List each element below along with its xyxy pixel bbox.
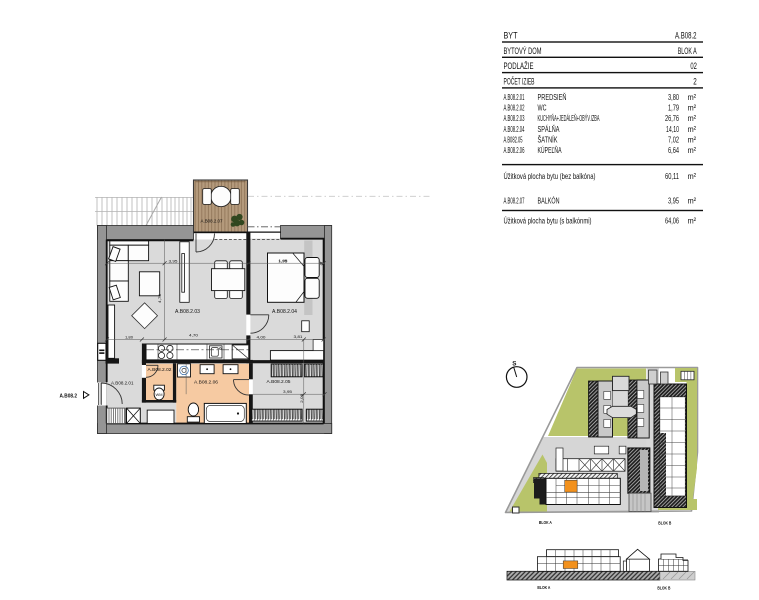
svg-text:m²: m² [688,135,697,145]
svg-text:BYT: BYT [504,31,518,41]
svg-text:BLOK B: BLOK B [658,521,672,526]
svg-text:A.B08.2: A.B08.2 [675,31,697,41]
svg-text:WM: WM [156,393,163,397]
svg-text:A.B08.2.04: A.B08.2.04 [504,124,525,134]
svg-text:PREDSIEŇ: PREDSIEŇ [538,92,567,102]
svg-text:A.B08.2.06: A.B08.2.06 [504,145,525,155]
svg-text:3,95: 3,95 [283,389,293,394]
svg-text:6,64: 6,64 [668,145,679,155]
svg-text:A.B08.2.02: A.B08.2.02 [148,367,172,373]
svg-text:S: S [512,361,517,368]
svg-text:m²: m² [688,145,697,155]
svg-text:A.B08.2.03: A.B08.2.03 [175,309,200,315]
svg-text:02: 02 [690,61,697,71]
svg-text:PODLAŽIE: PODLAŽIE [504,61,534,71]
svg-text:KÚPEĽŇA: KÚPEĽŇA [538,145,562,155]
svg-text:Úžitková plocha bytu (bez balk: Úžitková plocha bytu (bez balkóna) [504,171,596,181]
svg-text:SPÁLŇA: SPÁLŇA [538,124,560,134]
svg-text:BLOK A: BLOK A [539,520,553,525]
svg-text:1,80: 1,80 [125,334,134,339]
svg-text:14,10: 14,10 [666,124,679,134]
svg-text:KUCHYŇA+JEDÁLEŇ+OBÝV.IZBA: KUCHYŇA+JEDÁLEŇ+OBÝV.IZBA [538,113,600,123]
svg-text:7,02: 7,02 [668,135,679,145]
svg-text:A.B08.2.06: A.B08.2.06 [194,380,218,386]
svg-text:A.B08.2.03: A.B08.2.03 [504,113,525,123]
svg-text:4,76: 4,76 [157,293,162,303]
svg-text:A.B08.2.05: A.B08.2.05 [267,379,291,385]
svg-text:POČET IZIEB: POČET IZIEB [504,76,535,86]
svg-text:3,95: 3,95 [169,258,179,263]
svg-text:60,11: 60,11 [665,171,679,181]
svg-text:1,95: 1,95 [279,258,289,263]
svg-text:1,79: 1,79 [668,102,679,112]
svg-text:m²: m² [688,113,697,123]
svg-text:3,80: 3,80 [668,92,679,102]
svg-text:3,81: 3,81 [294,334,304,339]
svg-text:4,70: 4,70 [189,333,199,338]
svg-text:A.B08.2.01: A.B08.2.01 [111,380,134,386]
svg-text:m²: m² [688,171,697,181]
svg-text:4,00: 4,00 [257,335,267,340]
svg-text:m²: m² [688,196,697,206]
svg-text:A.B082.05: A.B082.05 [504,135,523,145]
svg-text:BLOK B: BLOK B [657,586,671,591]
svg-text:A.B08.2.04: A.B08.2.04 [272,309,297,315]
svg-text:A.B08.2.07: A.B08.2.07 [504,196,525,206]
svg-text:64,06: 64,06 [665,215,679,225]
svg-text:m²: m² [688,124,697,134]
svg-text:ŠATNÍK: ŠATNÍK [538,135,558,145]
svg-text:A.B08.2.02: A.B08.2.02 [504,102,525,112]
svg-text:BLOK A: BLOK A [678,46,697,56]
svg-text:BLOK A: BLOK A [537,585,551,590]
svg-text:A.B08.2: A.B08.2 [60,394,78,400]
svg-text:BYTOVÝ DOM: BYTOVÝ DOM [504,46,542,56]
svg-text:A.B08.2.07: A.B08.2.07 [201,219,223,224]
svg-text:2: 2 [693,76,697,86]
svg-text:m²: m² [688,92,697,102]
svg-text:m²: m² [688,215,697,225]
svg-text:Úžitková plocha bytu (s balkón: Úžitková plocha bytu (s balkónmi) [504,215,592,225]
svg-text:A.B08.2.01: A.B08.2.01 [504,92,525,102]
svg-text:BALKÓN: BALKÓN [538,196,560,206]
svg-text:2,06: 2,06 [299,393,304,403]
svg-text:m²: m² [688,102,697,112]
svg-text:WC: WC [538,102,547,112]
svg-text:26,76: 26,76 [665,113,679,123]
svg-text:3,95: 3,95 [668,196,679,206]
